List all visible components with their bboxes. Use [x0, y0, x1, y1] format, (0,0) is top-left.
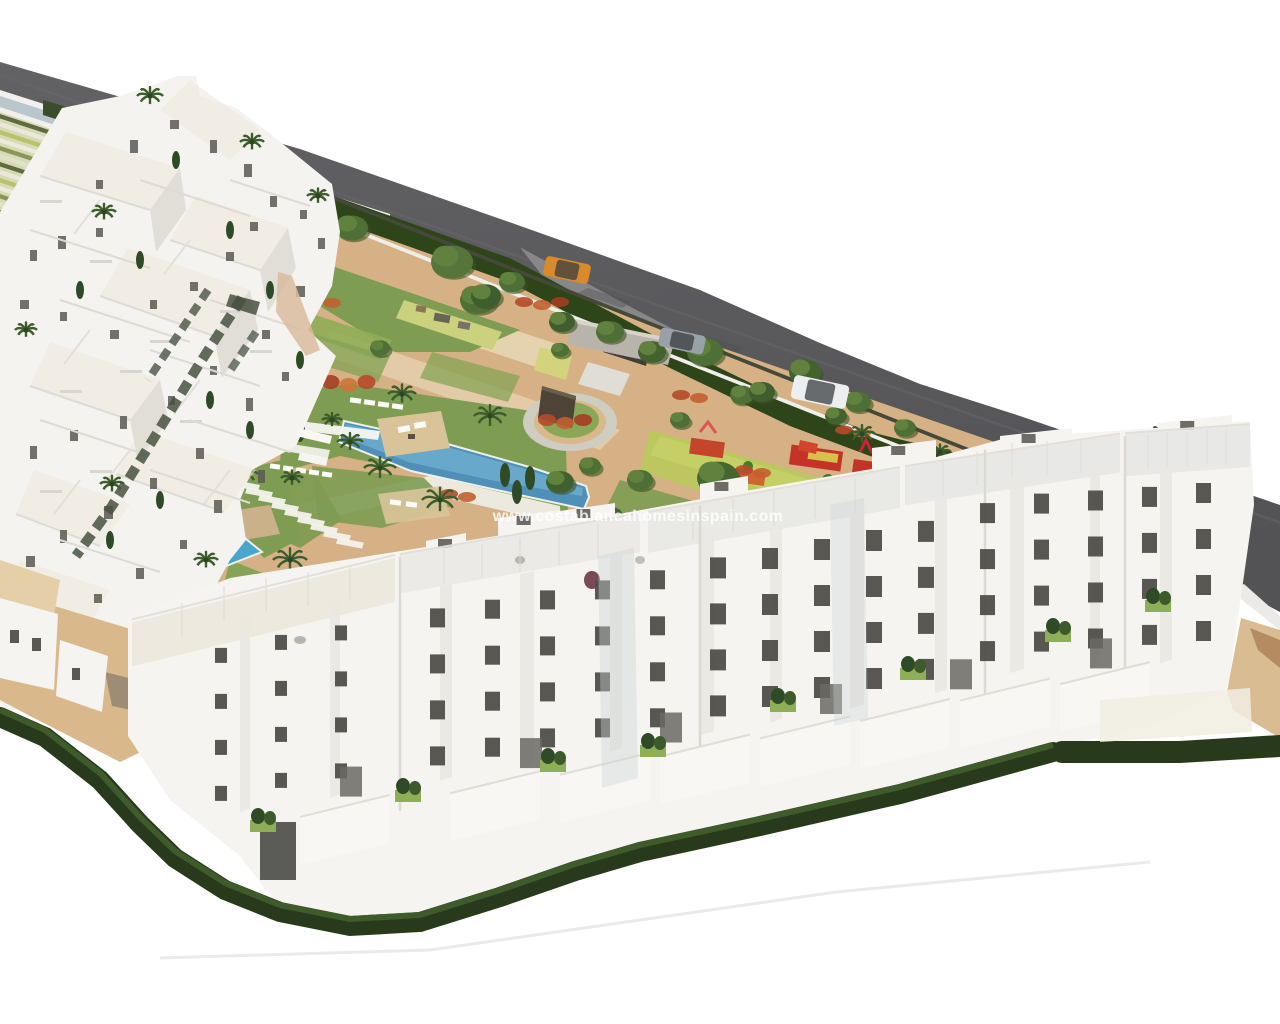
svg-text:www.costablancahomesinspain.co: www.costablancahomesinspain.com	[492, 508, 784, 525]
